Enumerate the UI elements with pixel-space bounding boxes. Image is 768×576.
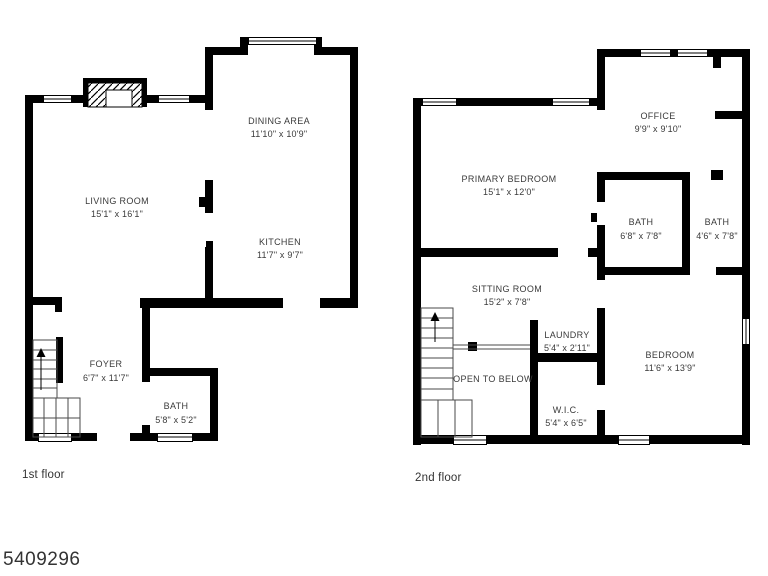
room-label-sitting-room: SITTING ROOM	[472, 285, 542, 295]
second-floor-windows	[422, 50, 750, 445]
room-dims-sitting-room: 15'2" x 7'8"	[484, 298, 531, 308]
room-label-office: OFFICE	[640, 112, 675, 122]
first-floor-walls	[25, 37, 358, 441]
room-dims-bedroom: 11'6" x 13'9"	[644, 364, 695, 374]
floor-plan-canvas: LIVING ROOM 15'1" x 16'1" DINING AREA 11…	[0, 0, 768, 576]
room-dims-laundry: 5'4" x 2'11"	[544, 344, 590, 354]
room-label-bath-1st: BATH	[164, 402, 189, 412]
room-dims-living-room: 15'1" x 16'1"	[91, 210, 143, 220]
room-dims-wic: 5'4" x 6'5"	[545, 419, 587, 429]
room-label-dining-area: DINING AREA	[248, 117, 310, 127]
room-dims-bath-hall: 4'6" x 7'8"	[696, 232, 738, 242]
floor-plan-drawing	[0, 0, 768, 576]
room-dims-primary-bedroom: 15'1" x 12'0"	[483, 188, 535, 198]
room-dims-dining-area: 11'10" x 10'9"	[251, 130, 308, 140]
second-floor-walls	[413, 49, 750, 445]
room-dims-kitchen: 11'7" x 9'7"	[257, 251, 303, 261]
room-dims-bath-1st: 5'8" x 5'2"	[155, 416, 197, 426]
room-label-wic: W.I.C.	[553, 406, 580, 416]
room-label-laundry: LAUNDRY	[544, 331, 589, 341]
first-floor-stairs-icon	[33, 340, 80, 437]
room-label-foyer: FOYER	[90, 360, 123, 370]
room-label-primary-bedroom: PRIMARY BEDROOM	[462, 175, 557, 185]
room-label-bedroom: BEDROOM	[646, 351, 695, 361]
mls-id-watermark: 5409296	[3, 549, 80, 571]
room-dims-office: 9'9" x 9'10"	[635, 125, 682, 135]
room-label-bath-hall: BATH	[705, 218, 730, 228]
open-to-below-railing	[453, 345, 530, 349]
room-label-open-to-below: OPEN TO BELOW	[453, 375, 533, 385]
room-label-living-room: LIVING ROOM	[85, 197, 149, 207]
room-dims-foyer: 6'7" x 11'7"	[83, 374, 129, 384]
room-dims-bath-primary: 6'8" x 7'8"	[620, 232, 662, 242]
room-label-bath-primary: BATH	[629, 218, 654, 228]
room-label-kitchen: KITCHEN	[259, 238, 301, 248]
first-floor-label: 1st floor	[22, 469, 65, 481]
second-floor-label: 2nd floor	[415, 472, 462, 484]
fireplace-icon	[83, 78, 147, 107]
second-floor-stairs-icon	[421, 308, 472, 437]
